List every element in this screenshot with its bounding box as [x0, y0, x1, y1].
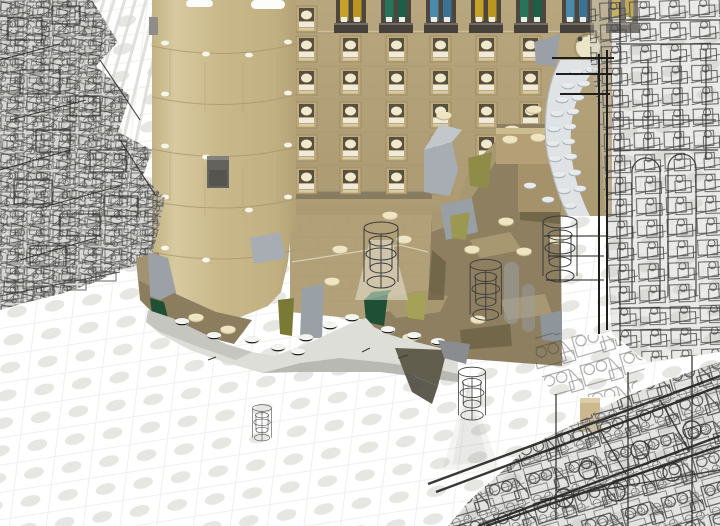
render-canvas[interactable] — [0, 0, 720, 526]
cad-3d-viewport[interactable] — [0, 0, 720, 526]
round-tan-tower — [149, 0, 296, 318]
